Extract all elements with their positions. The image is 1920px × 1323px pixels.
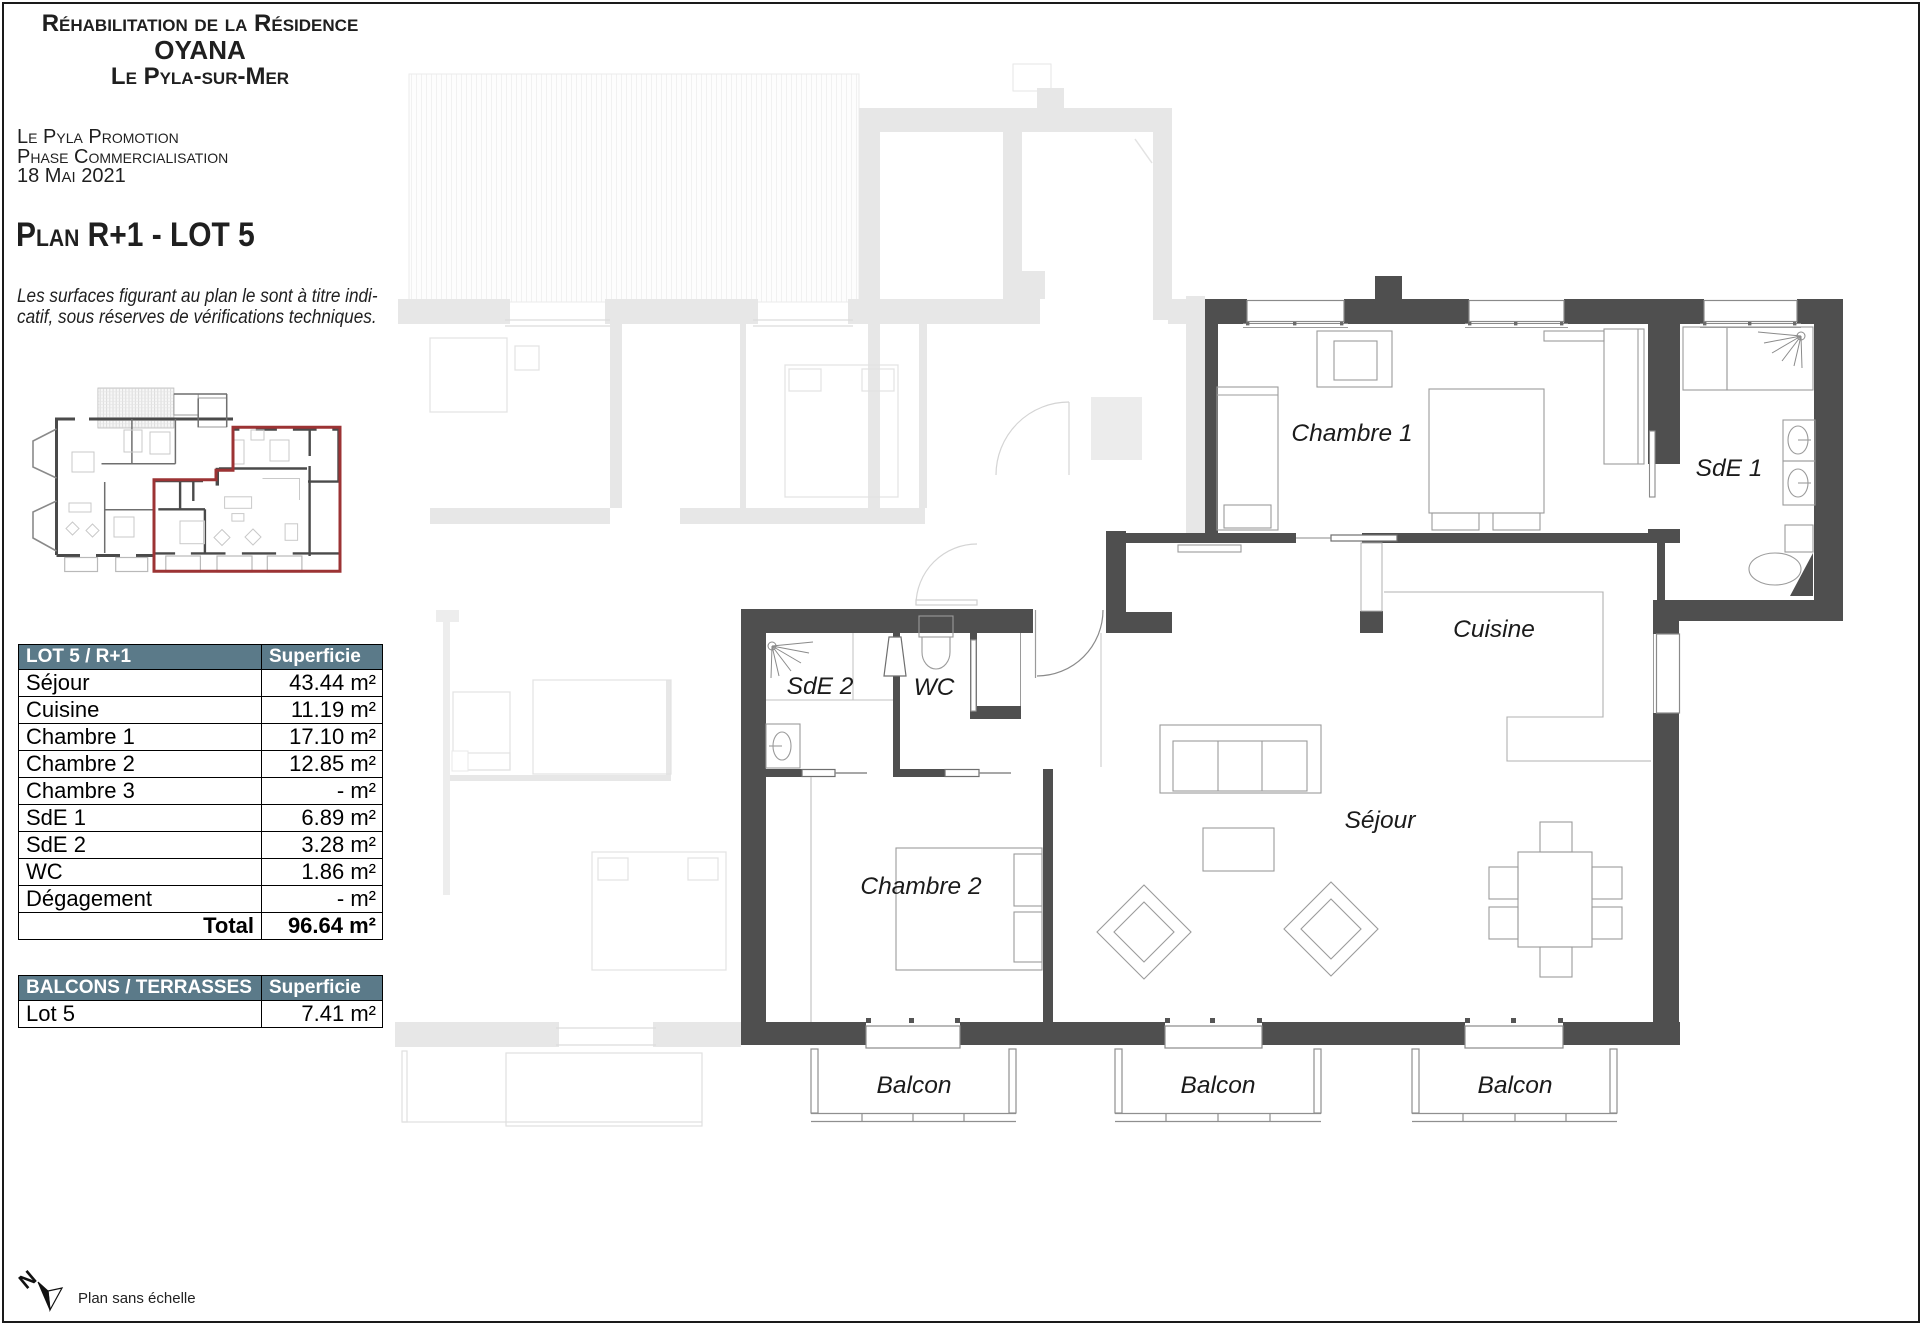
svg-text:Balcon: Balcon (1478, 1072, 1553, 1099)
svg-text:Chambre 2: Chambre 2 (860, 873, 982, 900)
svg-text:SdE 1: SdE 1 (1696, 455, 1763, 482)
svg-text:Cuisine: Cuisine (1453, 616, 1535, 643)
svg-text:SdE 2: SdE 2 (787, 673, 854, 700)
svg-text:Chambre 1: Chambre 1 (1291, 420, 1412, 447)
svg-text:N: N (15, 1266, 41, 1293)
svg-text:WC: WC (914, 674, 955, 701)
svg-text:Balcon: Balcon (877, 1072, 952, 1099)
svg-text:Séjour: Séjour (1345, 807, 1417, 834)
svg-text:Balcon: Balcon (1181, 1072, 1256, 1099)
